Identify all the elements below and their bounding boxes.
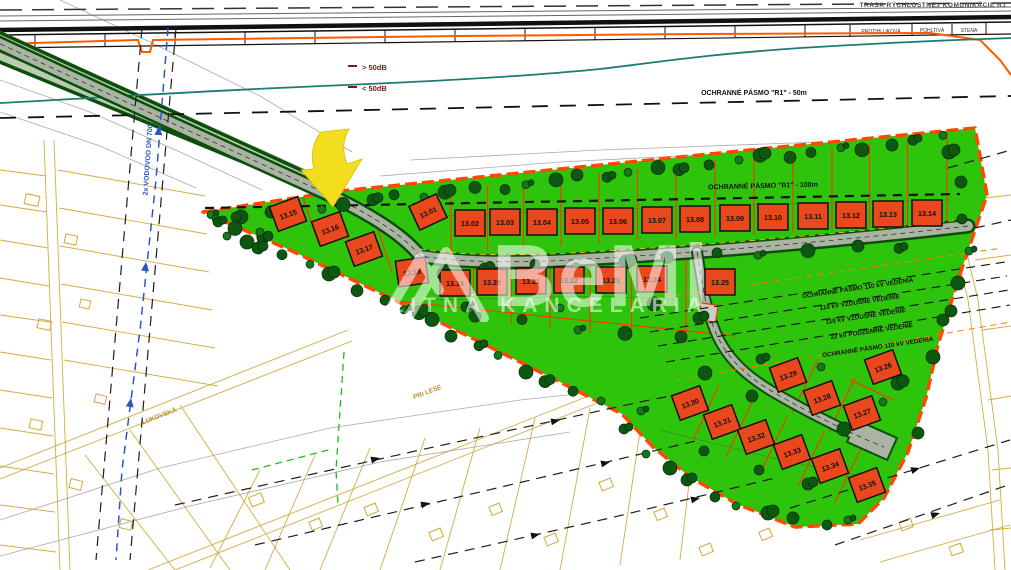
plot-label: 13.07 bbox=[648, 216, 666, 225]
noise-label-above: > 50dB bbox=[362, 63, 387, 72]
plot-marker-13-25: 13.25 bbox=[705, 269, 735, 295]
plot-marker-13-23: 13.23 bbox=[596, 267, 626, 293]
plot-label: 13.05 bbox=[571, 217, 589, 226]
plot-marker-13-14: 13.14 bbox=[912, 200, 942, 226]
plot-label: 13.06 bbox=[609, 217, 627, 226]
street-label-lukovska: LUKOVSKÁ bbox=[140, 405, 178, 427]
plot-marker-13-02: 13.02 bbox=[455, 210, 485, 236]
plot-label: 13.21 bbox=[522, 277, 540, 286]
noise-wall-label-3: STENA bbox=[961, 28, 978, 34]
road-edge-orange-line bbox=[0, 33, 1011, 75]
water-main-label: 2x VODOVOD DN 700 bbox=[143, 124, 155, 196]
plot-marker-13-18: 13.18 bbox=[395, 257, 428, 287]
plot-marker-13-20: 13.20 bbox=[477, 269, 507, 295]
plot-label: 13.11 bbox=[804, 212, 822, 221]
plot-marker-13-21: 13.21 bbox=[516, 268, 546, 294]
plot-marker-13-03: 13.03 bbox=[490, 209, 520, 235]
plot-marker-13-10: 13.10 bbox=[758, 204, 788, 230]
plot-marker-13-22: 13.22 bbox=[554, 267, 584, 293]
plot-label: 13.02 bbox=[461, 219, 479, 228]
plot-label: 13.19 bbox=[446, 279, 464, 288]
plot-marker-13-05: 13.05 bbox=[565, 208, 595, 234]
plot-marker-13-07: 13.07 bbox=[642, 207, 672, 233]
plot-marker-13-04: 13.04 bbox=[527, 209, 557, 235]
plot-label: 13.24 bbox=[643, 275, 661, 284]
plot-marker-13-12: 13.12 bbox=[836, 202, 866, 228]
plot-label: 13.13 bbox=[879, 210, 897, 219]
plot-marker-13-24: 13.24 bbox=[637, 266, 667, 292]
plot-label: 13.25 bbox=[711, 278, 729, 287]
plot-marker-13-08: 13.08 bbox=[680, 206, 710, 232]
route-title: TRASA RÝCHLOSTNEJ KOMUNIKÁCIE R1 bbox=[860, 0, 1007, 9]
map-canvas: LUKOVSKÁ PRI LESE TRASA RÝCHLOSTNEJ bbox=[0, 0, 1011, 570]
plot-marker-13-11: 13.11 bbox=[798, 203, 828, 229]
noise-label-below: < 50dB bbox=[362, 84, 387, 93]
plot-label: 13.10 bbox=[764, 213, 782, 222]
plot-marker-13-19: 13.19 bbox=[440, 270, 470, 296]
plot-label: 13.23 bbox=[602, 276, 620, 285]
plot-label: 13.12 bbox=[842, 211, 860, 220]
plot-label: 13.09 bbox=[726, 214, 744, 223]
plot-label: 13.04 bbox=[533, 218, 551, 227]
plot-label: 13.20 bbox=[483, 278, 501, 287]
plot-marker-13-09: 13.09 bbox=[720, 205, 750, 231]
plot-label: 13.03 bbox=[496, 218, 514, 227]
plot-label: 13.08 bbox=[686, 215, 704, 224]
plot-marker-13-06: 13.06 bbox=[603, 208, 633, 234]
plot-label: 13.22 bbox=[560, 276, 578, 285]
site-plan-map: LUKOVSKÁ PRI LESE TRASA RÝCHLOSTNEJ bbox=[0, 0, 1011, 570]
street-label-pri-lese: PRI LESE bbox=[412, 384, 443, 401]
r1-highway-band: TRASA RÝCHLOSTNEJ KOMUNIKÁCIE R1 PROTIHL… bbox=[0, 0, 1011, 48]
plot-label: 13.14 bbox=[918, 209, 936, 218]
protection-zone-50m-label: OCHRANNÉ PÁSMO "R1" - 50m bbox=[701, 88, 807, 97]
plot-marker-13-13: 13.13 bbox=[873, 201, 903, 227]
